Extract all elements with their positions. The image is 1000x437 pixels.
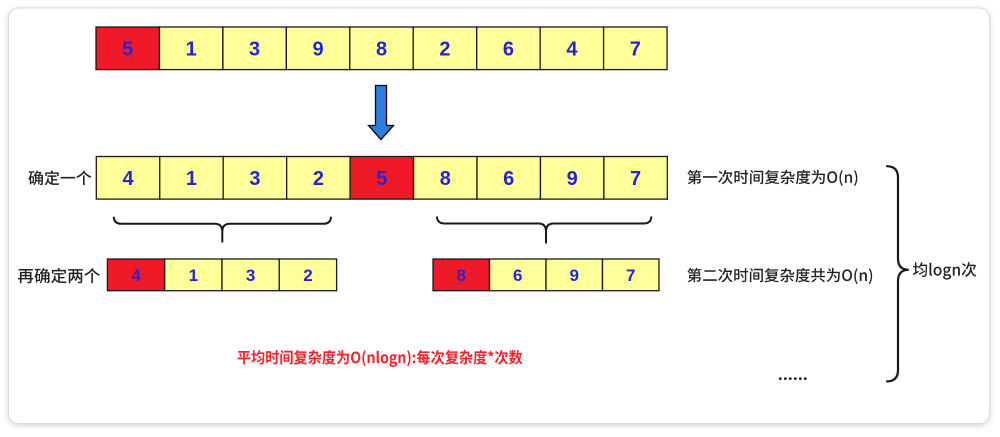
svg-text:5: 5 [376,168,387,190]
svg-text:1: 1 [186,168,197,190]
svg-text:9: 9 [570,266,579,285]
svg-text:4: 4 [566,38,578,60]
svg-text:1: 1 [186,38,197,60]
svg-text:3: 3 [249,38,260,60]
svg-text:4: 4 [122,168,134,190]
svg-text:8: 8 [376,38,387,60]
svg-text:2: 2 [313,168,324,190]
svg-text:7: 7 [630,38,641,60]
svg-text:8: 8 [440,168,451,190]
svg-text:8: 8 [457,266,466,285]
svg-text:2: 2 [439,38,450,60]
svg-text:4: 4 [131,266,141,285]
svg-text:2: 2 [303,266,312,285]
svg-text:9: 9 [567,168,578,190]
svg-text:6: 6 [503,38,514,60]
svg-text:7: 7 [626,266,635,285]
svg-text:3: 3 [246,266,255,285]
svg-text:6: 6 [513,266,522,285]
svg-text:1: 1 [189,266,198,285]
svg-text:9: 9 [313,38,324,60]
svg-text:3: 3 [249,168,260,190]
svg-text:6: 6 [503,168,514,190]
svg-text:7: 7 [630,168,641,190]
svg-text:5: 5 [122,38,133,60]
